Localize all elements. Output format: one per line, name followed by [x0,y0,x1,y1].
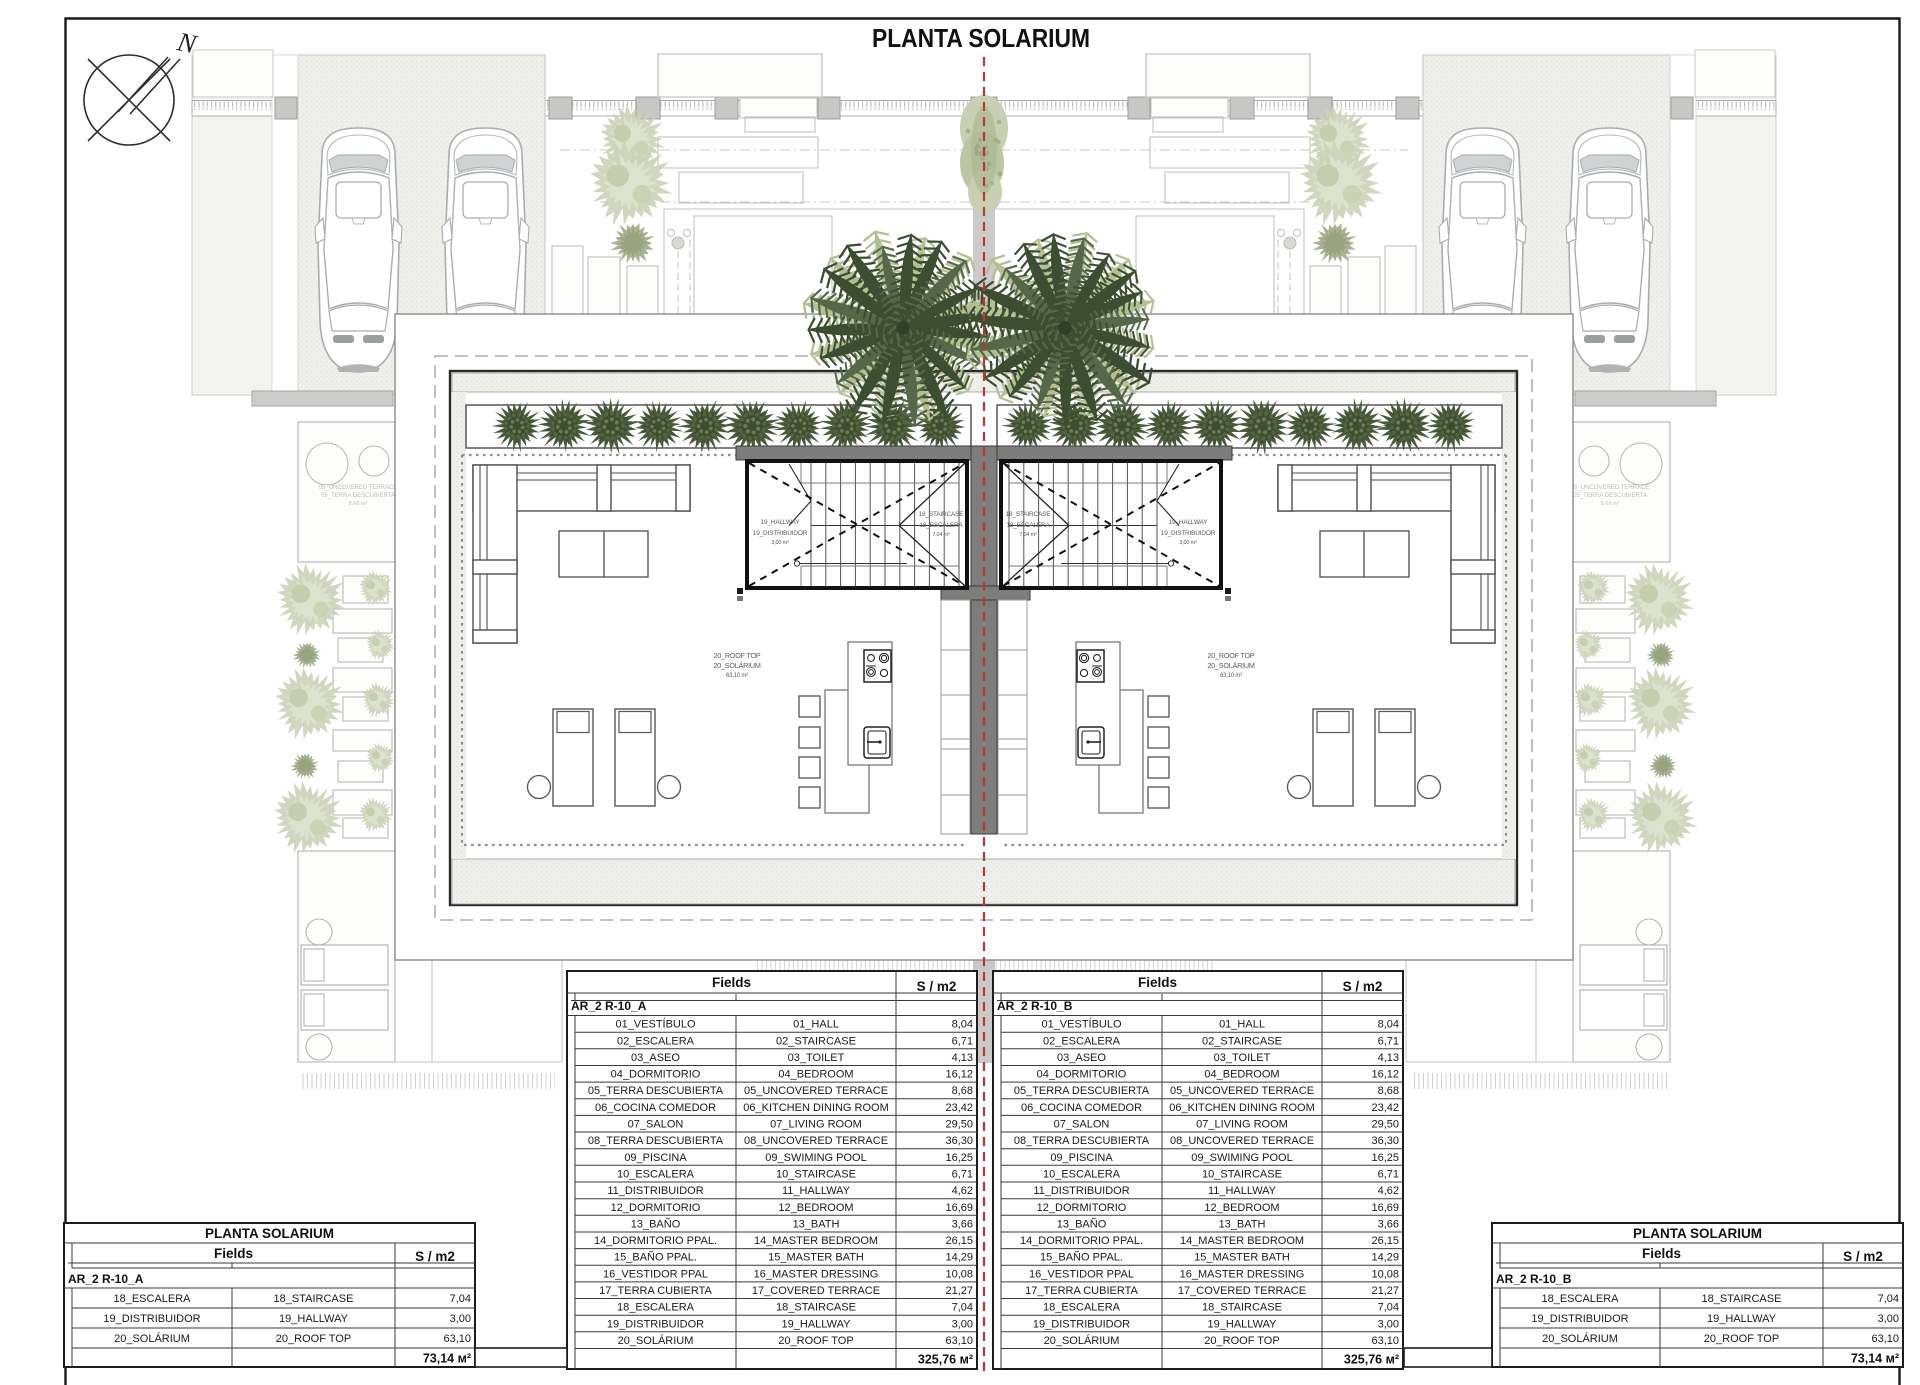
svg-text:18_STAIRCASE: 18_STAIRCASE [919,511,965,518]
svg-text:15_MASTER BATH: 15_MASTER BATH [1194,1252,1290,1264]
svg-text:02_ESCALERA: 02_ESCALERA [1043,1035,1121,1047]
svg-text:17_TERRA CUBIERTA: 17_TERRA CUBIERTA [599,1285,712,1297]
svg-text:73,14 м²: 73,14 м² [1851,1352,1899,1366]
svg-text:20_ROOF TOP: 20_ROOF TOP [1704,1333,1779,1345]
svg-text:19_DISTRIBUIDOR: 19_DISTRIBUIDOR [1531,1313,1628,1325]
svg-text:18_ESCALERA: 18_ESCALERA [617,1302,695,1314]
svg-text:17_COVERED TERRACE: 17_COVERED TERRACE [752,1285,880,1297]
svg-text:PLANTA SOLARIUM: PLANTA SOLARIUM [205,1226,334,1241]
svg-text:03_TOILET: 03_TOILET [1214,1052,1271,1064]
svg-text:16,25: 16,25 [945,1152,973,1164]
svg-text:06_COCINA COMEDOR: 06_COCINA COMEDOR [1021,1102,1142,1114]
svg-text:36,30: 36,30 [945,1135,973,1147]
svg-text:02_STAIRCASE: 02_STAIRCASE [776,1035,856,1047]
svg-text:14_DORMITORIO PPAL.: 14_DORMITORIO PPAL. [594,1235,717,1247]
svg-text:12_DORMITORIO: 12_DORMITORIO [1037,1202,1127,1214]
svg-text:18_ESCALERA: 18_ESCALERA [1006,522,1050,529]
svg-text:3,00: 3,00 [450,1313,471,1325]
svg-text:20_SOLÁRIUM: 20_SOLÁRIUM [114,1332,190,1345]
svg-text:7,04 m²: 7,04 m² [1019,532,1037,538]
svg-text:S / m2: S / m2 [415,1249,455,1264]
svg-text:02_STAIRCASE: 02_STAIRCASE [1202,1035,1282,1047]
svg-text:14,29: 14,29 [945,1252,973,1264]
svg-text:05_UNCOVERED TERRACE: 05_UNCOVERED TERRACE [744,1085,888,1097]
svg-text:18_STAIRCASE: 18_STAIRCASE [776,1302,856,1314]
svg-text:16,69: 16,69 [1371,1202,1399,1214]
svg-text:63,10: 63,10 [945,1335,973,1347]
svg-text:325,76 м²: 325,76 м² [918,1353,973,1367]
svg-text:3,00 m²: 3,00 m² [771,540,789,546]
svg-text:7,04 m²: 7,04 m² [932,532,950,538]
svg-text:16_VESTIDOR PPAL: 16_VESTIDOR PPAL [1029,1268,1134,1280]
svg-text:13_BAÑO: 13_BAÑO [1057,1217,1107,1230]
svg-text:3,00 m²: 3,00 m² [1179,540,1197,546]
svg-text:05_UNCOVERED TERRACE: 05_UNCOVERED TERRACE [319,485,398,491]
svg-text:8,68 m²: 8,68 m² [349,501,368,507]
svg-text:09_PISCINA: 09_PISCINA [1050,1152,1113,1164]
svg-text:12_BEDROOM: 12_BEDROOM [778,1202,853,1214]
svg-text:6,71: 6,71 [952,1169,973,1181]
svg-text:20_ROOF TOP: 20_ROOF TOP [1204,1335,1279,1347]
svg-text:29,50: 29,50 [1371,1119,1399,1131]
svg-text:14_MASTER BEDROOM: 14_MASTER BEDROOM [1180,1235,1304,1247]
svg-text:3,00: 3,00 [952,1318,973,1330]
svg-text:8,04: 8,04 [1378,1019,1399,1031]
svg-text:7,04: 7,04 [1878,1293,1899,1305]
svg-text:19_DISTRIBUIDOR: 19_DISTRIBUIDOR [753,530,808,537]
svg-text:10_STAIRCASE: 10_STAIRCASE [776,1169,856,1181]
svg-text:13_BATH: 13_BATH [1219,1218,1266,1230]
svg-text:S / m2: S / m2 [1843,1249,1883,1264]
svg-text:3,00: 3,00 [1378,1318,1399,1330]
svg-text:8,04: 8,04 [952,1019,973,1031]
svg-text:09_SWIMING POOL: 09_SWIMING POOL [1191,1152,1292,1164]
svg-text:23,42: 23,42 [945,1102,973,1114]
svg-text:10_STAIRCASE: 10_STAIRCASE [1202,1169,1282,1181]
svg-text:20_ROOF TOP: 20_ROOF TOP [276,1333,351,1345]
svg-text:Fields: Fields [214,1246,253,1261]
svg-text:06_KITCHEN DINING ROOM: 06_KITCHEN DINING ROOM [743,1102,888,1114]
svg-text:20_SOLÁRIUM: 20_SOLÁRIUM [1542,1332,1618,1345]
svg-text:06_COCINA COMEDOR: 06_COCINA COMEDOR [595,1102,716,1114]
svg-text:05_TERRA DESCUBIERTA: 05_TERRA DESCUBIERTA [1573,493,1647,499]
svg-text:19_DISTRIBUIDOR: 19_DISTRIBUIDOR [103,1313,200,1325]
svg-text:29,50: 29,50 [945,1119,973,1131]
svg-text:08_UNCOVERED TERRACE: 08_UNCOVERED TERRACE [744,1135,888,1147]
svg-text:16,12: 16,12 [945,1069,973,1081]
svg-text:19_DISTRIBUIDOR: 19_DISTRIBUIDOR [1161,530,1216,537]
svg-text:04_DORMITORIO: 04_DORMITORIO [611,1069,701,1081]
svg-text:7,04: 7,04 [952,1302,973,1314]
svg-text:03_ASEO: 03_ASEO [1057,1052,1106,1064]
svg-text:04_DORMITORIO: 04_DORMITORIO [1037,1069,1127,1081]
svg-text:04_BEDROOM: 04_BEDROOM [1204,1069,1279,1081]
svg-text:19_HALLWAY: 19_HALLWAY [1707,1313,1777,1325]
svg-text:16_MASTER DRESSING: 16_MASTER DRESSING [754,1268,879,1280]
svg-text:19_HALLWAY: 19_HALLWAY [761,519,801,526]
svg-text:17_COVERED TERRACE: 17_COVERED TERRACE [1178,1285,1306,1297]
svg-text:8,68: 8,68 [952,1085,973,1097]
svg-text:18_ESCALERA: 18_ESCALERA [113,1293,191,1305]
svg-text:16_MASTER DRESSING: 16_MASTER DRESSING [1180,1268,1305,1280]
svg-text:20_SOLÁRIUM: 20_SOLÁRIUM [713,661,761,670]
svg-text:8,68: 8,68 [1378,1085,1399,1097]
svg-text:13_BAÑO: 13_BAÑO [631,1217,681,1230]
svg-text:02_ESCALERA: 02_ESCALERA [617,1035,695,1047]
svg-text:19_HALLWAY: 19_HALLWAY [782,1318,852,1330]
svg-text:11_HALLWAY: 11_HALLWAY [782,1185,851,1197]
svg-text:13_BATH: 13_BATH [793,1218,840,1230]
svg-text:AR_2 R-10_A: AR_2 R-10_A [571,999,647,1013]
svg-text:08_TERRA DESCUBIERTA: 08_TERRA DESCUBIERTA [588,1135,724,1147]
svg-text:01_VESTÍBULO: 01_VESTÍBULO [1041,1018,1122,1031]
svg-text:06_KITCHEN DINING ROOM: 06_KITCHEN DINING ROOM [1169,1102,1314,1114]
svg-text:16,25: 16,25 [1371,1152,1399,1164]
svg-text:14_DORMITORIO PPAL.: 14_DORMITORIO PPAL. [1020,1235,1143,1247]
svg-text:05_TERRA DESCUBIERTA: 05_TERRA DESCUBIERTA [588,1085,724,1097]
svg-text:19_DISTRIBUIDOR: 19_DISTRIBUIDOR [607,1318,704,1330]
svg-text:12_BEDROOM: 12_BEDROOM [1204,1202,1279,1214]
svg-text:15_BAÑO PPAL.: 15_BAÑO PPAL. [614,1251,697,1264]
svg-text:07_LIVING ROOM: 07_LIVING ROOM [770,1119,862,1131]
svg-text:19_HALLWAY: 19_HALLWAY [1208,1318,1278,1330]
svg-text:10_ESCALERA: 10_ESCALERA [617,1169,695,1181]
svg-text:10_ESCALERA: 10_ESCALERA [1043,1169,1121,1181]
svg-text:01_HALL: 01_HALL [793,1019,839,1031]
svg-text:4,13: 4,13 [952,1052,973,1064]
svg-text:20_SOLÁRIUM: 20_SOLÁRIUM [1044,1334,1120,1347]
svg-text:7,04: 7,04 [450,1293,471,1305]
svg-text:19_DISTRIBUIDOR: 19_DISTRIBUIDOR [1033,1318,1130,1330]
svg-text:4,62: 4,62 [1378,1185,1399,1197]
svg-text:73,14 м²: 73,14 м² [423,1352,471,1366]
svg-text:08_UNCOVERED TERRACE: 08_UNCOVERED TERRACE [1170,1135,1314,1147]
svg-text:20_ROOF TOP: 20_ROOF TOP [713,651,760,660]
svg-text:21,27: 21,27 [945,1285,973,1297]
svg-text:6,71: 6,71 [1378,1169,1399,1181]
svg-text:11_HALLWAY: 11_HALLWAY [1208,1185,1277,1197]
svg-text:05_TERRA DESCUBIERTA: 05_TERRA DESCUBIERTA [1014,1085,1150,1097]
svg-text:63,10 m²: 63,10 m² [726,673,748,679]
svg-text:20_ROOF TOP: 20_ROOF TOP [778,1335,853,1347]
svg-text:AR_2 R-10_B: AR_2 R-10_B [997,999,1073,1013]
svg-text:10,08: 10,08 [945,1268,973,1280]
svg-text:18_ESCALERA: 18_ESCALERA [1043,1302,1121,1314]
svg-text:PLANTA SOLARIUM: PLANTA SOLARIUM [1633,1226,1762,1241]
svg-text:20_SOLÁRIUM: 20_SOLÁRIUM [618,1334,694,1347]
svg-text:63,10: 63,10 [443,1333,471,1345]
svg-text:18_ESCALERA: 18_ESCALERA [919,522,963,529]
svg-text:17_TERRA CUBIERTA: 17_TERRA CUBIERTA [1025,1285,1138,1297]
svg-text:21,27: 21,27 [1371,1285,1399,1297]
svg-text:PLANTA SOLARIUM: PLANTA SOLARIUM [872,23,1090,53]
svg-text:03_ASEO: 03_ASEO [631,1052,680,1064]
svg-text:15_BAÑO PPAL.: 15_BAÑO PPAL. [1040,1251,1123,1264]
svg-text:10,08: 10,08 [1371,1268,1399,1280]
svg-text:325,76 м²: 325,76 м² [1344,1353,1399,1367]
svg-text:14_MASTER BEDROOM: 14_MASTER BEDROOM [754,1235,878,1247]
svg-text:63,10 m²: 63,10 m² [1220,673,1242,679]
svg-text:20_ROOF TOP: 20_ROOF TOP [1207,651,1254,660]
svg-text:09_PISCINA: 09_PISCINA [624,1152,687,1164]
svg-text:18_STAIRCASE: 18_STAIRCASE [1702,1293,1782,1305]
svg-text:04_BEDROOM: 04_BEDROOM [778,1069,853,1081]
svg-text:Fields: Fields [712,975,751,990]
svg-text:11_DISTRIBUIDOR: 11_DISTRIBUIDOR [1033,1185,1129,1197]
svg-text:05_TERRA DESCUBIERTA: 05_TERRA DESCUBIERTA [321,493,395,499]
svg-text:20_SOLÁRIUM: 20_SOLÁRIUM [1207,661,1255,670]
svg-text:6,71: 6,71 [1378,1035,1399,1047]
svg-text:4,13: 4,13 [1378,1052,1399,1064]
svg-text:07_SALON: 07_SALON [1054,1119,1110,1131]
svg-text:S / m2: S / m2 [1343,979,1383,994]
svg-text:63,10: 63,10 [1871,1333,1899,1345]
svg-text:16_VESTIDOR PPAL: 16_VESTIDOR PPAL [603,1268,708,1280]
svg-text:63,10: 63,10 [1371,1335,1399,1347]
svg-text:23,42: 23,42 [1371,1102,1399,1114]
svg-text:08_TERRA DESCUBIERTA: 08_TERRA DESCUBIERTA [1014,1135,1150,1147]
svg-text:3,66: 3,66 [1378,1218,1399,1230]
svg-text:6,71: 6,71 [952,1035,973,1047]
svg-text:01_VESTÍBULO: 01_VESTÍBULO [615,1018,696,1031]
svg-text:19_HALLWAY: 19_HALLWAY [279,1313,349,1325]
svg-text:8,68 m²: 8,68 m² [1601,501,1620,507]
svg-text:18_STAIRCASE: 18_STAIRCASE [274,1293,354,1305]
svg-text:12_DORMITORIO: 12_DORMITORIO [611,1202,701,1214]
svg-text:09_SWIMING POOL: 09_SWIMING POOL [765,1152,866,1164]
svg-text:Fields: Fields [1138,975,1177,990]
svg-text:AR_2 R-10_B: AR_2 R-10_B [1496,1272,1572,1286]
svg-text:01_HALL: 01_HALL [1219,1019,1265,1031]
svg-text:16,69: 16,69 [945,1202,973,1214]
svg-text:18_ESCALERA: 18_ESCALERA [1541,1293,1619,1305]
svg-text:05_UNCOVERED TERRACE: 05_UNCOVERED TERRACE [1571,485,1650,491]
svg-text:05_UNCOVERED TERRACE: 05_UNCOVERED TERRACE [1170,1085,1314,1097]
svg-text:03_TOILET: 03_TOILET [788,1052,845,1064]
svg-text:15_MASTER BATH: 15_MASTER BATH [768,1252,864,1264]
svg-text:3,66: 3,66 [952,1218,973,1230]
svg-text:26,15: 26,15 [1371,1235,1399,1247]
svg-text:36,30: 36,30 [1371,1135,1399,1147]
svg-text:18_STAIRCASE: 18_STAIRCASE [1202,1302,1282,1314]
svg-text:07_LIVING ROOM: 07_LIVING ROOM [1196,1119,1288,1131]
svg-text:11_DISTRIBUIDOR: 11_DISTRIBUIDOR [607,1185,703,1197]
svg-text:AR_2 R-10_A: AR_2 R-10_A [68,1272,144,1286]
svg-text:3,00: 3,00 [1878,1313,1899,1325]
svg-text:07_SALON: 07_SALON [628,1119,684,1131]
svg-text:16,12: 16,12 [1371,1069,1399,1081]
svg-text:4,62: 4,62 [952,1185,973,1197]
svg-text:18_STAIRCASE: 18_STAIRCASE [1006,511,1052,518]
svg-text:Fields: Fields [1642,1246,1681,1261]
svg-text:7,04: 7,04 [1378,1302,1399,1314]
svg-text:26,15: 26,15 [945,1235,973,1247]
svg-text:14,29: 14,29 [1371,1252,1399,1264]
svg-text:19_HALLWAY: 19_HALLWAY [1169,519,1209,526]
svg-text:S / m2: S / m2 [917,979,957,994]
